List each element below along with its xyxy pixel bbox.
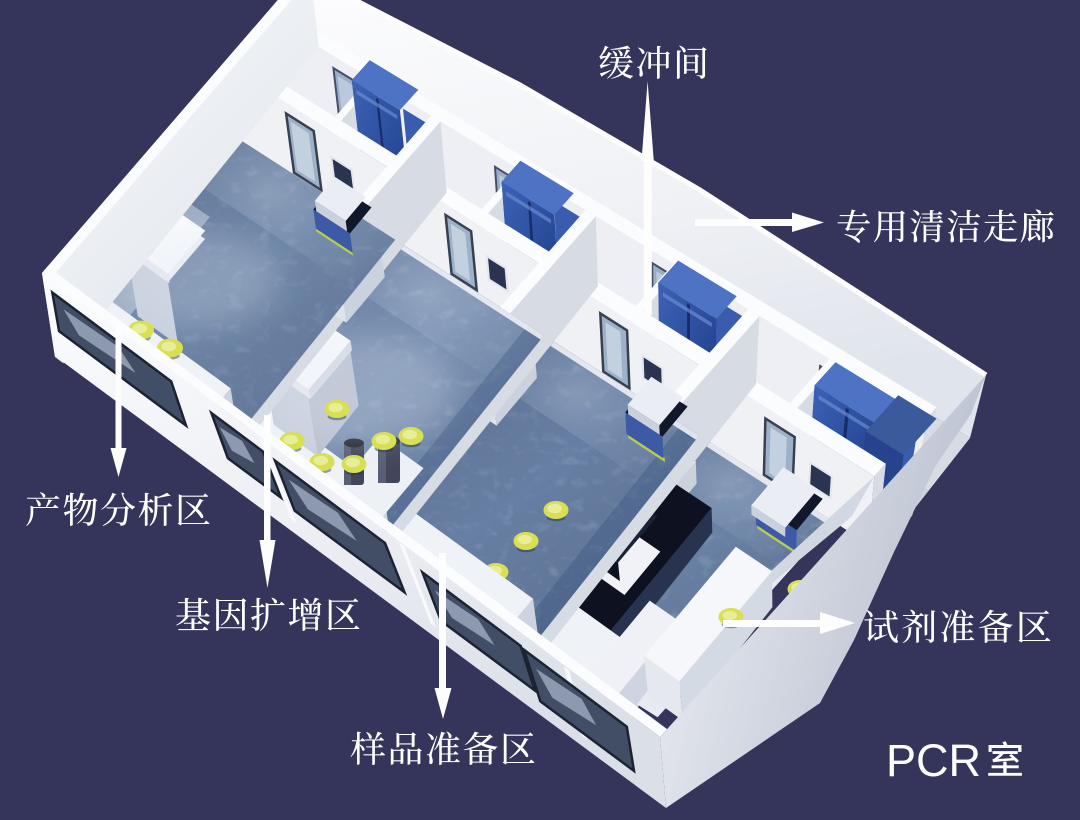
svg-text:PCR: PCR — [886, 735, 981, 786]
